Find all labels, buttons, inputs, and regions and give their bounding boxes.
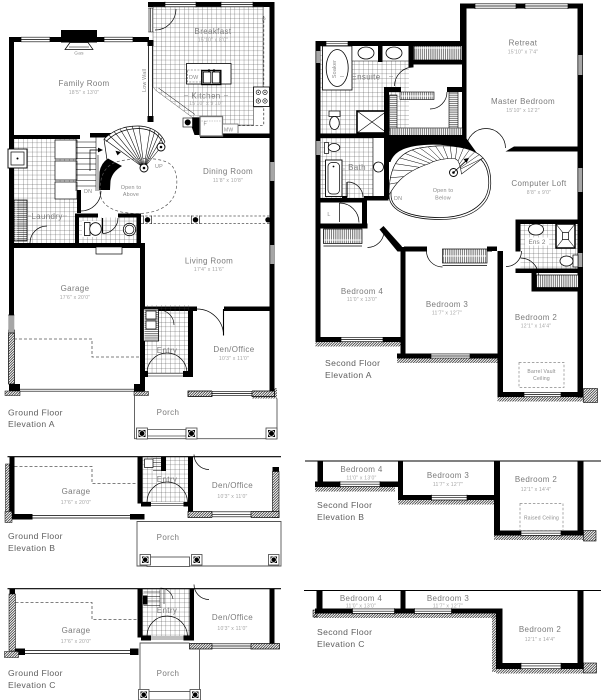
svg-text:Garage: Garage — [62, 487, 91, 496]
svg-text:Raised Ceiling: Raised Ceiling — [524, 516, 559, 522]
svg-text:Garage: Garage — [61, 284, 90, 293]
svg-text:Bedroom 4: Bedroom 4 — [340, 594, 382, 603]
svg-text:Bedroom 2: Bedroom 2 — [515, 313, 557, 322]
svg-text:Barrel Vault: Barrel Vault — [527, 369, 556, 375]
svg-text:11'7" x 12'7": 11'7" x 12'7" — [433, 604, 463, 610]
svg-text:18'5" x 13'0": 18'5" x 13'0" — [69, 90, 100, 96]
svg-text:Breakfast: Breakfast — [195, 27, 232, 36]
svg-text:Living Room: Living Room — [185, 257, 233, 266]
svg-text:Bedroom 3: Bedroom 3 — [427, 594, 469, 603]
svg-text:Bedroom 2: Bedroom 2 — [515, 475, 557, 484]
svg-text:Den/Office: Den/Office — [212, 613, 253, 622]
svg-text:Porch: Porch — [157, 669, 180, 678]
svg-text:11'7" x 12'7": 11'7" x 12'7" — [432, 311, 462, 317]
svg-text:Above: Above — [123, 192, 139, 198]
svg-text:Soaker: Soaker — [332, 60, 338, 78]
svg-text:Den/Office: Den/Office — [212, 481, 253, 490]
svg-text:Elevation B: Elevation B — [317, 512, 364, 522]
svg-text:Below: Below — [435, 196, 451, 202]
svg-text:Garage: Garage — [62, 626, 91, 635]
svg-text:Bedroom 3: Bedroom 3 — [426, 300, 468, 309]
svg-text:17'6" x 20'0": 17'6" x 20'0" — [61, 639, 92, 645]
svg-text:Entry: Entry — [157, 346, 177, 355]
svg-text:10'3" x 11'0": 10'3" x 11'0" — [217, 494, 247, 500]
svg-text:Bedroom 2: Bedroom 2 — [519, 625, 561, 634]
svg-text:Open to: Open to — [121, 185, 142, 191]
svg-text:Open to: Open to — [433, 188, 454, 194]
svg-text:10'3" x 11'0": 10'3" x 11'0" — [217, 626, 247, 632]
svg-text:Entry: Entry — [157, 475, 177, 484]
svg-text:Bedroom 4: Bedroom 4 — [340, 465, 382, 474]
svg-text:UP: UP — [155, 164, 163, 170]
svg-text:DN: DN — [394, 196, 402, 202]
svg-text:15'10" x 9'10": 15'10" x 9'10" — [189, 101, 223, 107]
svg-text:Dining Room: Dining Room — [203, 167, 253, 176]
svg-text:15'10" x 7'4": 15'10" x 7'4" — [508, 50, 539, 56]
svg-text:11'8" x 10'8": 11'8" x 10'8" — [213, 178, 243, 184]
svg-text:Family Room: Family Room — [59, 79, 110, 88]
svg-text:12'1" x 14'4": 12'1" x 14'4" — [521, 324, 552, 330]
svg-text:15'10" x 12'2": 15'10" x 12'2" — [506, 108, 540, 114]
svg-text:Bedroom 3: Bedroom 3 — [427, 471, 469, 480]
svg-text:Elevation C: Elevation C — [317, 639, 365, 649]
svg-text:Bedroom 4: Bedroom 4 — [341, 287, 383, 296]
svg-text:Ensuite: Ensuite — [351, 73, 380, 82]
svg-text:17'6" x 20'0": 17'6" x 20'0" — [60, 295, 91, 301]
svg-text:Porch: Porch — [157, 533, 180, 542]
svg-text:Second Floor: Second Floor — [325, 358, 380, 368]
svg-text:Elevation A: Elevation A — [8, 419, 55, 429]
svg-text:MW: MW — [224, 128, 233, 134]
svg-text:Porch: Porch — [157, 408, 180, 417]
svg-text:11'0" x 13'0": 11'0" x 13'0" — [347, 297, 377, 303]
svg-text:P: P — [262, 18, 266, 24]
svg-text:11'0" x 13'0": 11'0" x 13'0" — [346, 476, 376, 482]
svg-text:8'8" x 9'0": 8'8" x 9'0" — [527, 190, 551, 196]
svg-text:Bath: Bath — [348, 163, 366, 172]
svg-text:Den/Office: Den/Office — [213, 345, 254, 354]
svg-text:Ens 2: Ens 2 — [528, 239, 545, 246]
svg-text:15'10" x 8'0": 15'10" x 8'0" — [198, 38, 229, 44]
svg-text:Kitchen: Kitchen — [191, 92, 220, 101]
svg-text:DW: DW — [189, 75, 199, 81]
svg-text:Entry: Entry — [157, 606, 177, 615]
svg-text:Ground Floor: Ground Floor — [8, 408, 63, 418]
svg-text:Elevation B: Elevation B — [8, 543, 55, 553]
svg-text:Retreat: Retreat — [509, 39, 538, 48]
svg-text:Computer Loft: Computer Loft — [511, 179, 567, 188]
svg-text:11'7" x 12'7": 11'7" x 12'7" — [433, 482, 463, 488]
svg-text:F: F — [204, 122, 208, 128]
svg-text:Ceiling: Ceiling — [533, 376, 550, 382]
svg-text:DN: DN — [84, 189, 92, 195]
svg-text:Ground Floor: Ground Floor — [8, 531, 63, 541]
svg-text:Master Bedroom: Master Bedroom — [491, 97, 555, 106]
svg-text:Elevation A: Elevation A — [325, 370, 372, 380]
svg-text:Low Wall: Low Wall — [142, 69, 148, 92]
svg-text:17'4" x 11'6": 17'4" x 11'6" — [194, 267, 224, 273]
svg-text:10'3" x 11'0": 10'3" x 11'0" — [219, 356, 249, 362]
svg-text:Gas: Gas — [74, 51, 84, 57]
svg-text:Second Floor: Second Floor — [317, 627, 372, 637]
svg-text:11'0" x 13'0": 11'0" x 13'0" — [346, 604, 376, 610]
svg-text:12'1" x 14'4": 12'1" x 14'4" — [525, 637, 556, 643]
svg-text:L: L — [327, 212, 330, 218]
svg-text:Elevation C: Elevation C — [8, 680, 56, 690]
svg-text:Second Floor: Second Floor — [317, 500, 372, 510]
svg-text:12'1" x 14'4": 12'1" x 14'4" — [521, 487, 552, 493]
svg-text:Laundry: Laundry — [31, 212, 62, 221]
svg-text:Ground Floor: Ground Floor — [8, 668, 63, 678]
svg-text:17'6" x 20'0": 17'6" x 20'0" — [61, 500, 92, 506]
